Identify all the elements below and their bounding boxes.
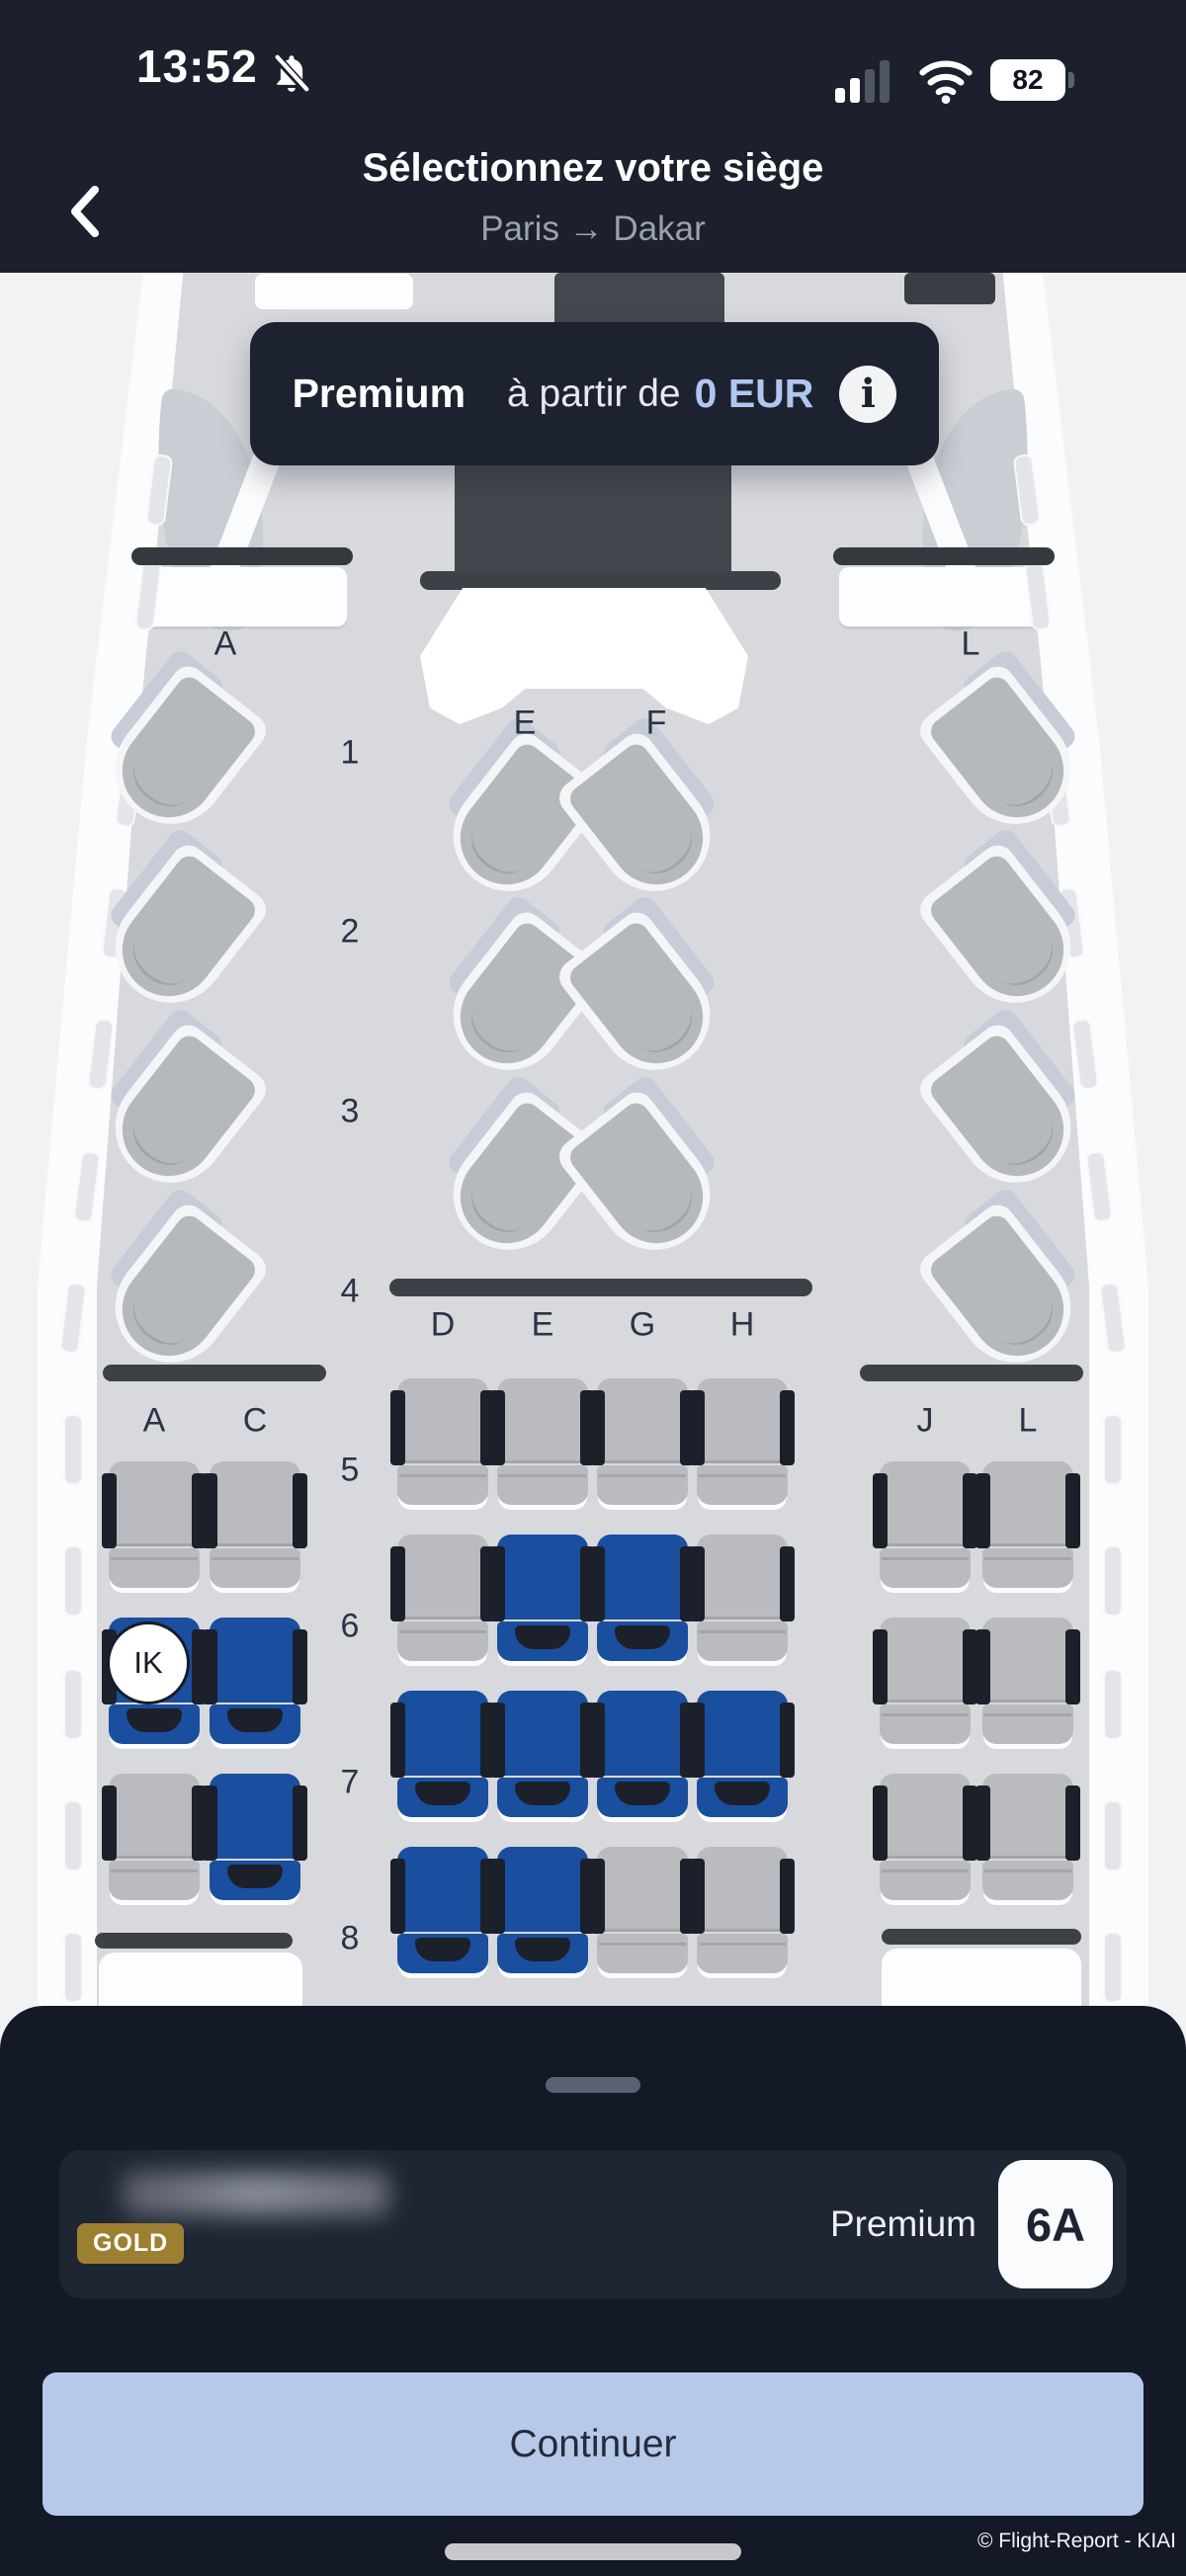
seat-cushion — [397, 1621, 488, 1661]
seat-cushion — [597, 1465, 688, 1505]
seat-1F — [558, 736, 726, 904]
lavatory-front-left — [255, 274, 413, 309]
seat-6J — [880, 1618, 971, 1744]
banner-cabin-class: Premium — [293, 371, 466, 417]
seat-back — [397, 1691, 488, 1776]
status-time: 13:52 — [136, 40, 258, 93]
seat-back — [880, 1618, 971, 1703]
seat-cushion — [497, 1465, 588, 1505]
row-number-6: 6 — [341, 1608, 360, 1646]
route-to: Dakar — [613, 209, 705, 248]
seat-2F — [558, 915, 726, 1083]
seat-cushion — [109, 1548, 200, 1588]
window-right — [1103, 1800, 1123, 1871]
seat-7C[interactable] — [210, 1774, 300, 1900]
seat-cushion — [982, 1861, 1073, 1900]
seat-back — [397, 1847, 488, 1932]
exit-door-front-right — [839, 567, 1049, 626]
seat-5J — [880, 1461, 971, 1588]
seat-cushion — [697, 1934, 788, 1973]
window-left — [63, 1669, 83, 1740]
seat-3A — [99, 1028, 267, 1196]
selected-seat-passenger-badge: IK — [107, 1621, 190, 1704]
column-label-A: A — [214, 625, 237, 664]
seat-cushion — [565, 1098, 721, 1262]
seat-4A — [99, 1207, 267, 1375]
seat-cushion — [982, 1548, 1073, 1588]
seat-cushion — [926, 1031, 1082, 1195]
cellular-signal-icon — [835, 59, 889, 103]
banner-price-prefix: à partir de — [507, 373, 681, 416]
seat-back — [597, 1847, 688, 1932]
seat-cushion — [982, 1704, 1073, 1744]
seat-5L — [982, 1461, 1073, 1588]
divider-premium-rear-left — [95, 1933, 293, 1949]
seat-1L — [919, 669, 1087, 837]
galley-front-right — [904, 273, 995, 304]
row-number-2: 2 — [341, 913, 360, 952]
window-left — [63, 1800, 83, 1871]
seat-back — [397, 1535, 488, 1620]
continue-button[interactable]: Continuer — [42, 2372, 1144, 2516]
seat-6E[interactable] — [497, 1535, 588, 1661]
window-right — [1103, 1545, 1123, 1617]
seat-cushion — [926, 851, 1082, 1015]
seat-back — [982, 1774, 1073, 1859]
seat-cushion — [397, 1465, 488, 1505]
seat-cushion — [104, 1210, 260, 1374]
seat-cushion — [565, 918, 721, 1082]
seat-back — [497, 1535, 588, 1620]
window-left — [63, 1414, 83, 1485]
seat-5H — [697, 1378, 788, 1505]
window-right — [1103, 1414, 1123, 1485]
info-icon[interactable]: i — [839, 366, 896, 423]
seat-8E[interactable] — [497, 1847, 588, 1973]
divider-premium-front-left — [103, 1365, 326, 1381]
route-from: Paris — [480, 209, 559, 248]
seat-6C[interactable] — [210, 1618, 300, 1744]
seat-cushion — [697, 1621, 788, 1661]
column-label-E: E — [514, 705, 537, 743]
selected-seat-number-badge: 6A — [998, 2160, 1113, 2288]
exit-bar-front-right — [833, 547, 1055, 565]
divider-premium-front-right — [860, 1365, 1083, 1381]
seat-back — [210, 1461, 300, 1546]
passenger-cabin-class: Premium — [830, 2203, 976, 2245]
page-title: Sélectionnez votre siège — [0, 146, 1186, 191]
seat-back — [697, 1378, 788, 1463]
exit-door-front-left — [137, 567, 347, 626]
passenger-name-redacted — [123, 2172, 389, 2215]
drag-handle[interactable] — [546, 2077, 640, 2093]
route-subtitle: Paris → Dakar — [0, 209, 1186, 249]
header: 13:52 82 Sélectionnez votre siège Paris … — [0, 0, 1186, 273]
seat-back — [397, 1378, 488, 1463]
seat-6D — [397, 1535, 488, 1661]
seat-6A[interactable]: IK — [109, 1618, 200, 1744]
window-left — [63, 1932, 83, 2003]
row-number-7: 7 — [341, 1764, 360, 1802]
seat-back — [697, 1691, 788, 1776]
seat-cushion — [880, 1861, 971, 1900]
seat-back — [880, 1774, 971, 1859]
seat-cushion — [926, 1210, 1082, 1374]
seat-cushion — [104, 672, 260, 836]
window-right — [1103, 1669, 1123, 1740]
seat-back — [982, 1461, 1073, 1546]
seat-back — [210, 1618, 300, 1703]
seat-7H[interactable] — [697, 1691, 788, 1817]
home-indicator[interactable] — [445, 2543, 741, 2560]
banner-price: 0 EUR — [695, 371, 814, 417]
seat-4L — [919, 1207, 1087, 1375]
seat-8D[interactable] — [397, 1847, 488, 1973]
seat-8G — [597, 1847, 688, 1973]
seat-back — [109, 1461, 200, 1546]
seat-2L — [919, 848, 1087, 1016]
seat-7G[interactable] — [597, 1691, 688, 1817]
seat-cushion — [109, 1861, 200, 1900]
battery-icon: 82 — [990, 59, 1065, 101]
seat-back — [697, 1847, 788, 1932]
seat-6L — [982, 1618, 1073, 1744]
column-label-E: E — [532, 1306, 554, 1345]
footer-credit: © Flight-Report - KIAI — [977, 2530, 1176, 2553]
column-label-H: H — [730, 1306, 755, 1345]
route-arrow-icon: → — [569, 209, 604, 248]
column-label-C: C — [243, 1402, 268, 1441]
cabin-class-price-banner[interactable]: Premium à partir de 0 EUR i — [250, 322, 939, 465]
divider-business-rear-center — [389, 1279, 812, 1296]
seat-3F — [558, 1095, 726, 1263]
galley-shelf-bar — [420, 571, 781, 590]
seat-6H — [697, 1535, 788, 1661]
notifications-off-icon — [269, 51, 314, 97]
seat-back — [109, 1774, 200, 1859]
seat-selection-screen: Premium à partir de 0 EUR i 1234ALEF5IK6… — [0, 0, 1186, 2576]
seat-7E[interactable] — [497, 1691, 588, 1817]
seat-cushion — [697, 1465, 788, 1505]
seat-back — [497, 1691, 588, 1776]
column-label-J: J — [917, 1402, 934, 1441]
row-number-5: 5 — [341, 1452, 360, 1490]
seat-5G — [597, 1378, 688, 1505]
bottom-sheet: GOLD Premium 6A Continuer © Flight-Repor… — [0, 2006, 1186, 2576]
column-label-A: A — [143, 1402, 166, 1441]
seat-2A — [99, 848, 267, 1016]
seat-5C — [210, 1461, 300, 1588]
seat-cushion — [104, 851, 260, 1015]
seat-back — [210, 1774, 300, 1859]
seat-cushion — [104, 1031, 260, 1195]
seat-back — [982, 1618, 1073, 1703]
column-label-G: G — [630, 1306, 655, 1345]
gold-tier-badge: GOLD — [77, 2223, 184, 2264]
seat-7J — [880, 1774, 971, 1900]
seat-7L — [982, 1774, 1073, 1900]
seat-3L — [919, 1028, 1087, 1196]
seat-8H — [697, 1847, 788, 1973]
row-number-8: 8 — [341, 1920, 360, 1958]
row-number-4: 4 — [341, 1273, 360, 1311]
wifi-icon — [917, 57, 974, 105]
seat-cushion — [210, 1548, 300, 1588]
seat-back — [697, 1535, 788, 1620]
passenger-card: GOLD Premium 6A — [59, 2150, 1127, 2298]
seat-back — [880, 1461, 971, 1546]
row-number-3: 3 — [341, 1093, 360, 1131]
window-left — [63, 1545, 83, 1617]
seat-back — [597, 1691, 688, 1776]
seat-7A — [109, 1774, 200, 1900]
seat-back — [597, 1378, 688, 1463]
seat-7D[interactable] — [397, 1691, 488, 1817]
column-label-L: L — [962, 625, 980, 664]
window-right — [1103, 1932, 1123, 2003]
divider-premium-rear-right — [882, 1929, 1081, 1945]
row-number-1: 1 — [341, 734, 360, 773]
column-label-D: D — [431, 1306, 456, 1345]
seat-1A — [99, 669, 267, 837]
exit-bar-front-left — [131, 547, 353, 565]
column-label-L: L — [1019, 1402, 1038, 1441]
seat-cushion — [597, 1934, 688, 1973]
seat-5A — [109, 1461, 200, 1588]
seat-cushion — [880, 1548, 971, 1588]
seat-6G[interactable] — [597, 1535, 688, 1661]
seat-back — [497, 1847, 588, 1932]
seat-cushion — [880, 1704, 971, 1744]
seat-back — [597, 1535, 688, 1620]
seat-back — [497, 1378, 588, 1463]
seat-5E — [497, 1378, 588, 1505]
seat-5D — [397, 1378, 488, 1505]
column-label-F: F — [646, 705, 667, 743]
seat-cushion — [565, 739, 721, 903]
seat-cushion — [926, 672, 1082, 836]
